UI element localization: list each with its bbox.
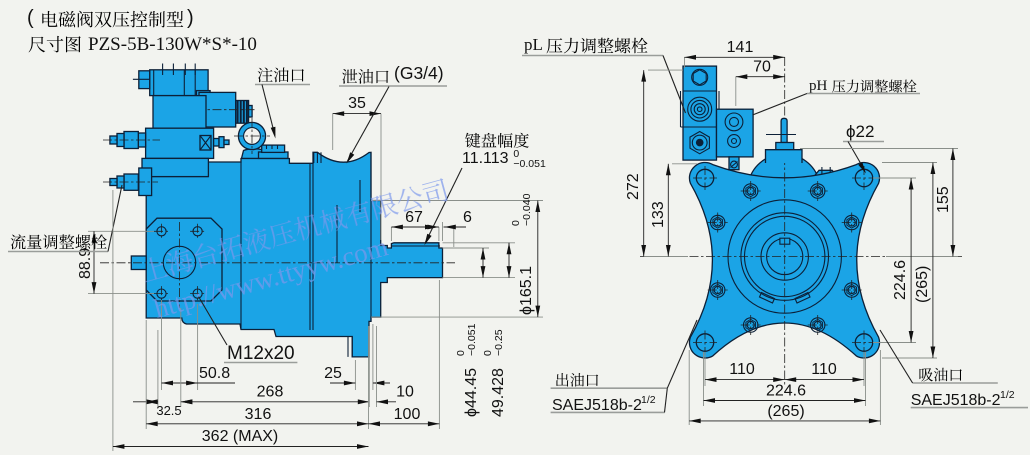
svg-text:32.5: 32.5 <box>156 403 181 418</box>
svg-text:362 (MAX): 362 (MAX) <box>202 428 278 445</box>
svg-text:11.113: 11.113 <box>462 150 509 167</box>
svg-text:6: 6 <box>463 209 472 226</box>
svg-text:133: 133 <box>650 201 667 228</box>
svg-text:): ) <box>187 7 194 29</box>
svg-text:1/2: 1/2 <box>641 394 656 406</box>
svg-text:67: 67 <box>405 209 423 226</box>
svg-text:50.8: 50.8 <box>199 365 230 382</box>
svg-text:SAEJ518b-2: SAEJ518b-2 <box>552 397 642 414</box>
svg-text:(: ( <box>27 7 34 29</box>
svg-text:−0.051: −0.051 <box>513 158 546 170</box>
svg-text:35: 35 <box>348 95 366 112</box>
svg-text:272: 272 <box>625 173 642 200</box>
svg-text:10: 10 <box>396 384 414 401</box>
svg-text:ϕ165.1: ϕ165.1 <box>518 266 535 315</box>
svg-text:224.6: 224.6 <box>766 383 806 400</box>
svg-text:(G3/4): (G3/4) <box>394 63 444 83</box>
svg-text:SAEJ518b-2: SAEJ518b-2 <box>911 392 1001 409</box>
svg-text:155: 155 <box>935 186 952 213</box>
svg-text:−0.25: −0.25 <box>493 329 505 356</box>
svg-text:141: 141 <box>727 39 754 56</box>
svg-text:25: 25 <box>324 365 342 382</box>
svg-text:316: 316 <box>245 406 272 423</box>
svg-text:49.428: 49.428 <box>490 368 507 417</box>
svg-text:110: 110 <box>811 361 837 378</box>
svg-text:100: 100 <box>394 406 421 423</box>
svg-text:pL: pL <box>524 35 543 54</box>
svg-text:70: 70 <box>753 59 771 76</box>
svg-text:−0.040: −0.040 <box>521 193 533 226</box>
svg-text:110: 110 <box>729 361 755 378</box>
svg-text:(265): (265) <box>767 403 804 420</box>
svg-text:PZS-5B-130W*S*-10: PZS-5B-130W*S*-10 <box>88 34 257 55</box>
svg-text:ϕ44.45: ϕ44.45 <box>463 368 480 417</box>
svg-text:268: 268 <box>257 384 284 401</box>
svg-text:224.6: 224.6 <box>892 260 909 300</box>
svg-text:M12x20: M12x20 <box>227 343 295 364</box>
svg-text:−0.051: −0.051 <box>466 323 478 356</box>
svg-text:88.9: 88.9 <box>77 248 94 279</box>
svg-text:1/2: 1/2 <box>1000 389 1015 401</box>
svg-text:pH: pH <box>809 78 828 94</box>
svg-text:(265): (265) <box>914 266 931 303</box>
svg-text:ϕ22: ϕ22 <box>846 122 874 141</box>
